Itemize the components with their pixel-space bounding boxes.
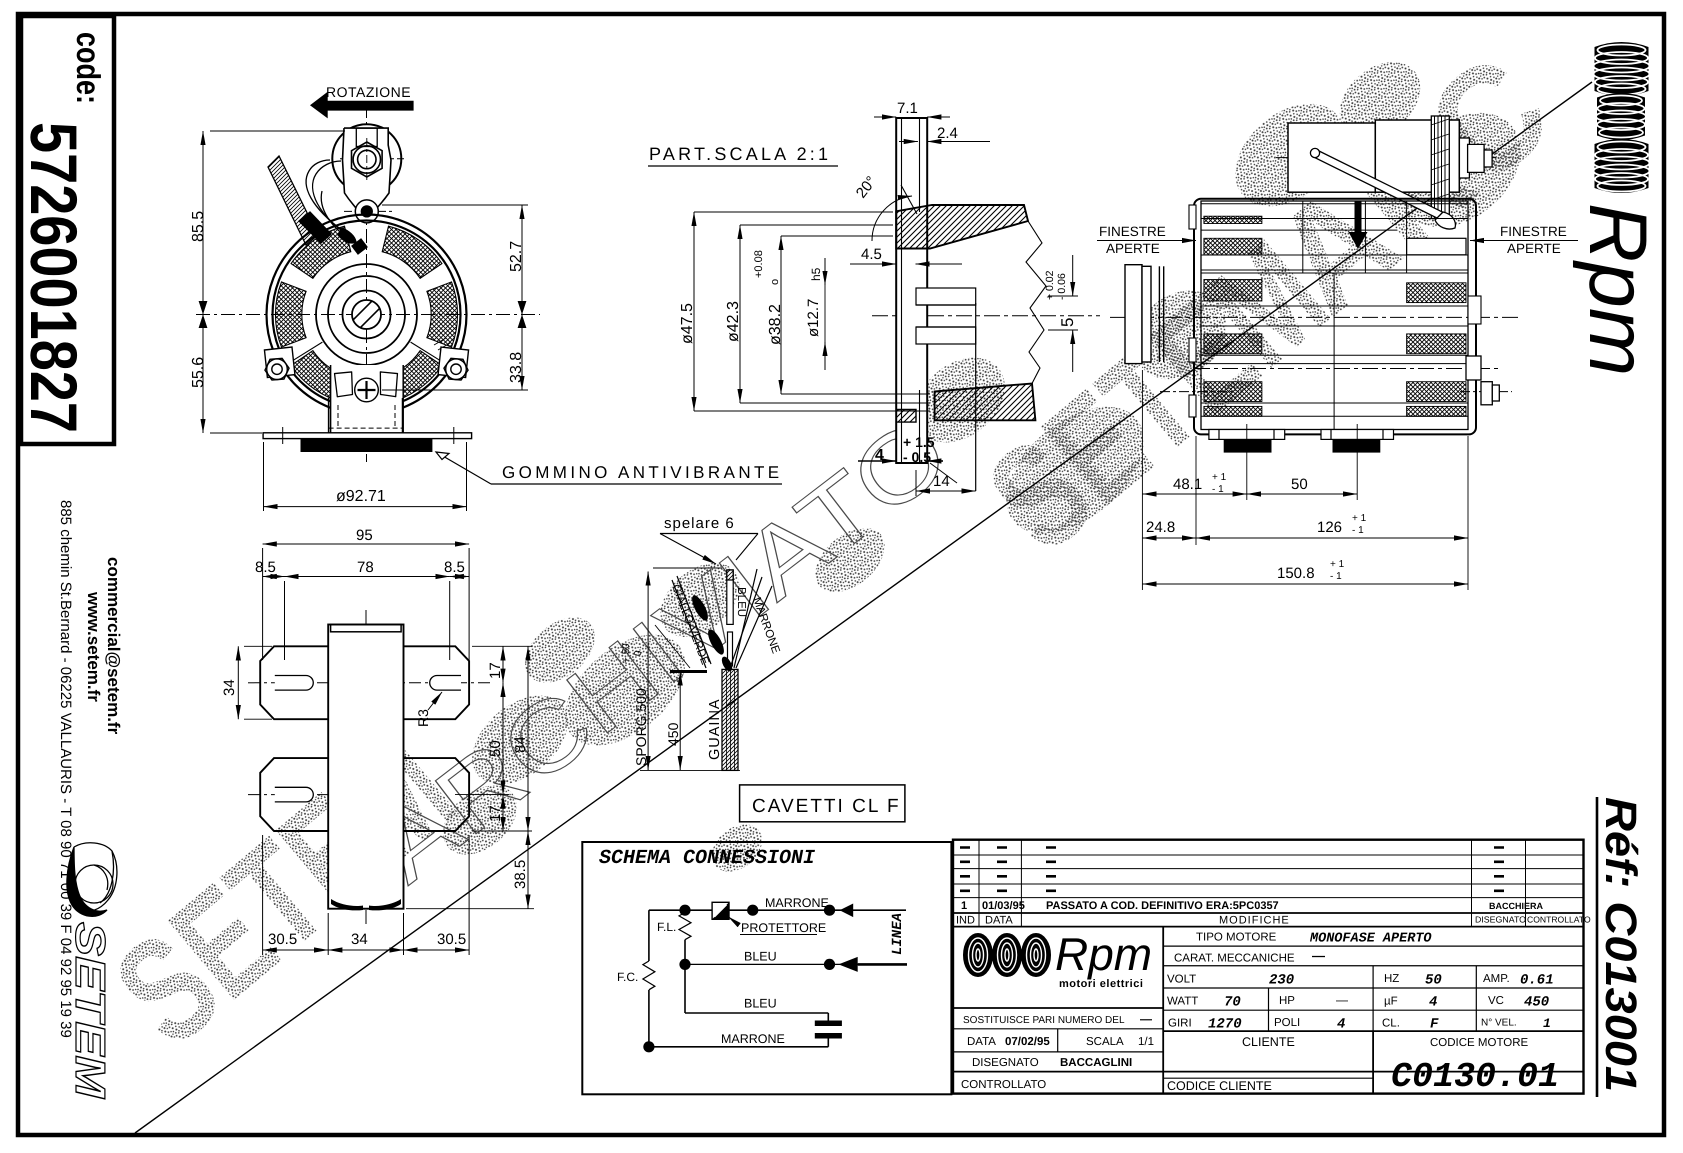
svg-text:AMP.: AMP. bbox=[1483, 973, 1510, 985]
svg-text:+ 0.02: + 0.02 bbox=[1044, 270, 1056, 300]
svg-text:DISEGNATO: DISEGNATO bbox=[972, 1057, 1039, 1069]
svg-text:30.5: 30.5 bbox=[437, 931, 466, 948]
svg-text:o: o bbox=[769, 279, 781, 285]
svg-text:230: 230 bbox=[1269, 973, 1294, 989]
svg-text:MODIFICHE: MODIFICHE bbox=[1219, 915, 1290, 927]
svg-text:50: 50 bbox=[487, 740, 504, 757]
svg-text:4.5: 4.5 bbox=[861, 246, 882, 263]
svg-text:R3: R3 bbox=[415, 709, 431, 727]
svg-text:VOLT: VOLT bbox=[1167, 974, 1196, 986]
svg-text:IND: IND bbox=[956, 915, 975, 927]
svg-text:h5: h5 bbox=[809, 267, 823, 281]
svg-text:SCHEMA CONNESSIONI: SCHEMA CONNESSIONI bbox=[599, 847, 816, 870]
svg-text:F.C.: F.C. bbox=[617, 970, 638, 984]
svg-text:+ 1.5: + 1.5 bbox=[903, 434, 935, 450]
svg-text:450: 450 bbox=[1524, 995, 1549, 1011]
svg-text:1: 1 bbox=[961, 900, 967, 912]
svg-text:CAVETTI CL F: CAVETTI CL F bbox=[752, 796, 901, 817]
svg-text:14: 14 bbox=[933, 473, 950, 490]
svg-text:APERTE: APERTE bbox=[1106, 241, 1160, 256]
svg-text:33.8: 33.8 bbox=[508, 352, 525, 383]
svg-text:TIPO MOTORE: TIPO MOTORE bbox=[1196, 932, 1277, 944]
svg-text:34: 34 bbox=[351, 931, 368, 948]
svg-text:0: 0 bbox=[633, 650, 644, 656]
svg-text:PROTETTORE: PROTETTORE bbox=[741, 921, 826, 935]
svg-text:55.6: 55.6 bbox=[190, 357, 207, 388]
svg-text:+ 1: + 1 bbox=[1352, 513, 1367, 524]
svg-text:HP: HP bbox=[1279, 995, 1295, 1007]
svg-text:- 0.06: - 0.06 bbox=[1056, 273, 1068, 300]
svg-text:SCALA: SCALA bbox=[1086, 1036, 1124, 1048]
svg-text:01/03/95: 01/03/95 bbox=[982, 900, 1025, 912]
svg-text:48.1: 48.1 bbox=[1173, 476, 1202, 493]
svg-text:MARRONE: MARRONE bbox=[721, 1032, 785, 1046]
svg-text:+ 1: + 1 bbox=[1212, 472, 1227, 483]
svg-text:84: 84 bbox=[512, 736, 529, 753]
svg-text:spelare 6: spelare 6 bbox=[664, 515, 735, 532]
svg-text:N° VEL.: N° VEL. bbox=[1481, 1018, 1517, 1029]
svg-text:- 0.5: - 0.5 bbox=[903, 449, 931, 465]
svg-text:5726001827: 5726001827 bbox=[17, 122, 91, 433]
svg-text:ø92.71: ø92.71 bbox=[336, 488, 386, 505]
svg-text:5: 5 bbox=[1058, 318, 1077, 327]
svg-text:SETEM: SETEM bbox=[67, 922, 114, 1099]
svg-text:CONTROLLATO: CONTROLLATO bbox=[961, 1079, 1046, 1091]
svg-text:BACCAGLINI: BACCAGLINI bbox=[1060, 1057, 1132, 1069]
svg-text:70: 70 bbox=[1224, 995, 1241, 1011]
svg-text:DATA: DATA bbox=[985, 915, 1013, 927]
svg-text:POLI: POLI bbox=[1274, 1017, 1300, 1029]
svg-text:www.setem.fr: www.setem.fr bbox=[84, 591, 103, 702]
svg-text:CARAT. MECCANICHE: CARAT. MECCANICHE bbox=[1174, 953, 1295, 965]
svg-text:1/1: 1/1 bbox=[1138, 1036, 1154, 1048]
svg-text:BACCHIERA: BACCHIERA bbox=[1489, 901, 1544, 911]
svg-text:WATT: WATT bbox=[1167, 996, 1198, 1008]
svg-text:30.5: 30.5 bbox=[268, 931, 297, 948]
svg-text:+ 50: + 50 bbox=[621, 643, 632, 663]
svg-text:ø12.7: ø12.7 bbox=[805, 299, 822, 337]
svg-text:—: — bbox=[1336, 993, 1348, 1007]
svg-text:95: 95 bbox=[356, 527, 373, 544]
svg-text:C0130.01: C0130.01 bbox=[1391, 1057, 1559, 1097]
svg-text:- 1: - 1 bbox=[1352, 525, 1364, 536]
svg-text:- 1: - 1 bbox=[1212, 484, 1224, 495]
svg-text:—: — bbox=[1312, 948, 1325, 963]
svg-text:85.5: 85.5 bbox=[190, 211, 207, 242]
svg-text:code:: code: bbox=[70, 32, 107, 104]
svg-text:µF: µF bbox=[1384, 996, 1398, 1008]
svg-text:Rpm: Rpm bbox=[1572, 203, 1663, 376]
svg-text:commercial@setem.fr: commercial@setem.fr bbox=[104, 557, 123, 735]
svg-text:1: 1 bbox=[1543, 1016, 1551, 1031]
svg-text:GOMMINO ANTIVIBRANTE: GOMMINO ANTIVIBRANTE bbox=[502, 463, 783, 482]
svg-text:DATA: DATA bbox=[967, 1036, 996, 1048]
svg-text:Réf: C013001: Réf: C013001 bbox=[1596, 797, 1645, 1092]
svg-text:150.8: 150.8 bbox=[1277, 565, 1315, 582]
svg-text:SOSTITUISCE PARI NUMERO DEL: SOSTITUISCE PARI NUMERO DEL bbox=[963, 1015, 1125, 1026]
svg-text:07/02/95: 07/02/95 bbox=[1005, 1036, 1050, 1048]
svg-text:SPORG.500: SPORG.500 bbox=[633, 688, 649, 766]
svg-text:50: 50 bbox=[1425, 973, 1442, 989]
svg-text:ROTAZIONE: ROTAZIONE bbox=[326, 84, 411, 100]
svg-text:ø47.5: ø47.5 bbox=[679, 303, 696, 344]
svg-text:4: 4 bbox=[1429, 995, 1437, 1011]
svg-text:CL.: CL. bbox=[1382, 1018, 1400, 1030]
svg-text:+0.08: +0.08 bbox=[753, 250, 765, 278]
svg-text:BLEU: BLEU bbox=[744, 950, 777, 964]
svg-text:F: F bbox=[1430, 1017, 1439, 1033]
svg-text:FINESTRE: FINESTRE bbox=[1099, 224, 1166, 239]
svg-text:FINESTRE: FINESTRE bbox=[1500, 224, 1567, 239]
svg-text:52.7: 52.7 bbox=[508, 241, 525, 272]
svg-text:20°: 20° bbox=[853, 173, 880, 201]
svg-text:17: 17 bbox=[487, 805, 504, 822]
svg-text:8.5: 8.5 bbox=[444, 559, 465, 576]
svg-text:GUAINA: GUAINA bbox=[707, 698, 723, 760]
svg-text:24.8: 24.8 bbox=[1146, 519, 1175, 536]
svg-text:F.L.: F.L. bbox=[657, 920, 676, 934]
svg-text:ø42.3: ø42.3 bbox=[725, 301, 742, 342]
svg-text:VC: VC bbox=[1488, 995, 1504, 1007]
svg-text:78: 78 bbox=[357, 559, 374, 576]
svg-text:34: 34 bbox=[221, 679, 238, 696]
svg-text:—: — bbox=[1140, 1012, 1152, 1026]
svg-text:GIRI: GIRI bbox=[1168, 1018, 1192, 1030]
svg-text:Rpm: Rpm bbox=[1055, 928, 1152, 980]
svg-text:1270: 1270 bbox=[1208, 1017, 1242, 1033]
svg-text:2.4: 2.4 bbox=[937, 125, 958, 142]
svg-text:APERTE: APERTE bbox=[1507, 241, 1561, 256]
svg-text:BLEU: BLEU bbox=[735, 587, 747, 617]
svg-text:+ 1: + 1 bbox=[1330, 559, 1345, 570]
svg-text:CODICE MOTORE: CODICE MOTORE bbox=[1430, 1037, 1529, 1049]
svg-text:4: 4 bbox=[1337, 1017, 1345, 1033]
svg-text:450: 450 bbox=[665, 722, 681, 746]
svg-text:LINEA: LINEA bbox=[890, 913, 906, 955]
svg-text:CODICE CLIENTE: CODICE CLIENTE bbox=[1167, 1079, 1272, 1093]
svg-text:DISEGNATO: DISEGNATO bbox=[1475, 915, 1526, 925]
svg-text:8.5: 8.5 bbox=[255, 559, 276, 576]
svg-text:38.5: 38.5 bbox=[512, 860, 529, 889]
svg-text:CLIENTE: CLIENTE bbox=[1242, 1035, 1295, 1049]
svg-text:BLEU: BLEU bbox=[744, 997, 777, 1011]
svg-text:ø38.2: ø38.2 bbox=[767, 304, 784, 345]
svg-text:motori elettrici: motori elettrici bbox=[1059, 978, 1143, 990]
svg-text:CONTROLLATO: CONTROLLATO bbox=[1527, 915, 1591, 925]
svg-text:MARRONE: MARRONE bbox=[765, 896, 829, 910]
svg-text:PASSATO A COD. DEFINITIVO ERA:: PASSATO A COD. DEFINITIVO ERA:5PC0357 bbox=[1046, 900, 1279, 912]
svg-text:0.61: 0.61 bbox=[1520, 973, 1554, 989]
svg-text:HZ: HZ bbox=[1384, 973, 1399, 985]
svg-text:7.1: 7.1 bbox=[897, 100, 918, 117]
svg-text:- 1: - 1 bbox=[1330, 571, 1342, 582]
svg-text:MONOFASE APERTO: MONOFASE APERTO bbox=[1309, 932, 1432, 947]
svg-text:50: 50 bbox=[1291, 476, 1308, 493]
svg-text:126: 126 bbox=[1317, 519, 1342, 536]
svg-text:17: 17 bbox=[487, 662, 504, 679]
svg-text:PART.SCALA 2:1: PART.SCALA 2:1 bbox=[649, 144, 831, 164]
